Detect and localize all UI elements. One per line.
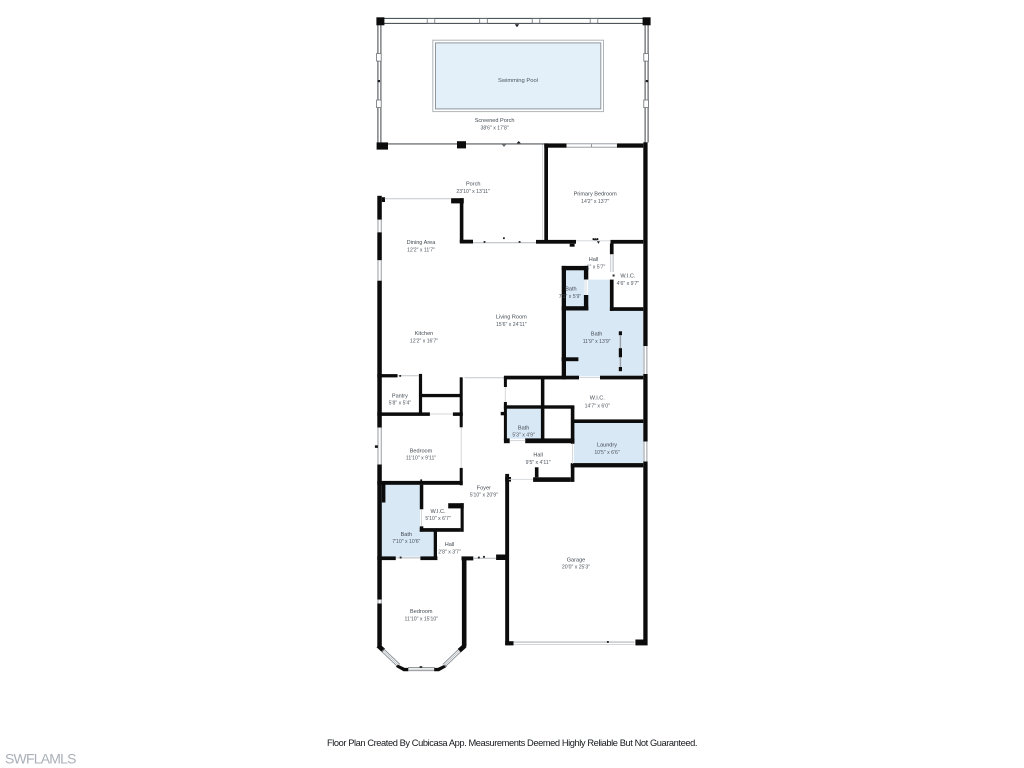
svg-text:Hall: Hall	[533, 453, 543, 459]
svg-text:Laundry: Laundry	[597, 442, 617, 448]
svg-text:12'2" x 11'7": 12'2" x 11'7"	[407, 248, 435, 254]
svg-text:Bath: Bath	[565, 287, 576, 293]
svg-text:9'5" x 4'11": 9'5" x 4'11"	[526, 460, 551, 466]
svg-text:Porch: Porch	[466, 182, 481, 188]
svg-text:2'8" x 3'7": 2'8" x 3'7"	[438, 550, 461, 556]
svg-text:Hall: Hall	[445, 542, 455, 548]
svg-text:Living Room: Living Room	[496, 314, 527, 320]
svg-text:Hall: Hall	[589, 257, 599, 263]
svg-text:Bedroom: Bedroom	[410, 448, 433, 454]
svg-text:Garage: Garage	[567, 557, 586, 563]
svg-text:W.I.C.: W.I.C.	[590, 396, 606, 402]
svg-text:10'5" x 6'6": 10'5" x 6'6"	[594, 450, 620, 456]
svg-text:Primary Bedroom: Primary Bedroom	[574, 192, 618, 198]
svg-text:20'0" x 25'3": 20'0" x 25'3"	[562, 565, 590, 571]
svg-text:Dining Area: Dining Area	[407, 240, 437, 246]
svg-text:1" x 5'7": 1" x 5'7"	[587, 264, 606, 270]
svg-text:Foyer: Foyer	[477, 486, 491, 492]
svg-text:Bath: Bath	[591, 332, 602, 338]
svg-text:Floor Plan Created By Cubicasa: Floor Plan Created By Cubicasa App. Meas…	[327, 738, 697, 748]
svg-text:11'10" x 15'10": 11'10" x 15'10"	[405, 617, 439, 623]
svg-text:15'6" x 24'11": 15'6" x 24'11"	[496, 322, 527, 328]
svg-text:W.I.C.: W.I.C.	[430, 509, 446, 515]
svg-text:Swimming Pool: Swimming Pool	[498, 78, 538, 84]
svg-text:14'2" x 13'7": 14'2" x 13'7"	[581, 199, 609, 205]
svg-text:Bath: Bath	[401, 532, 412, 538]
svg-text:Screened Porch: Screened Porch	[475, 118, 515, 124]
svg-text:7'10" x 10'6": 7'10" x 10'6"	[392, 539, 420, 545]
svg-text:14'7" x 6'0": 14'7" x 6'0"	[585, 403, 611, 409]
svg-text:38'6" x 17'8": 38'6" x 17'8"	[480, 126, 508, 132]
svg-text:W.I.C.: W.I.C.	[620, 274, 636, 280]
svg-text:Pantry: Pantry	[392, 394, 408, 400]
svg-text:5'10" x 6'7": 5'10" x 6'7"	[425, 516, 451, 522]
svg-text:4'6" x 9'7": 4'6" x 9'7"	[617, 281, 640, 287]
svg-text:Bath: Bath	[518, 426, 529, 432]
svg-text:5'10" x 20'9": 5'10" x 20'9"	[470, 493, 498, 499]
svg-text:7'1" x 5'9": 7'1" x 5'9"	[559, 294, 582, 300]
svg-text:Kitchen: Kitchen	[415, 331, 434, 337]
svg-text:Bedroom: Bedroom	[410, 609, 433, 615]
svg-text:11'9" x 13'9": 11'9" x 13'9"	[583, 339, 611, 345]
svg-text:11'10" x 9'11": 11'10" x 9'11"	[406, 456, 436, 462]
svg-text:5'3" x 4'9": 5'3" x 4'9"	[512, 433, 535, 439]
svg-text:12'2" x 16'7": 12'2" x 16'7"	[410, 339, 438, 345]
svg-text:23'10" x 13'11": 23'10" x 13'11"	[456, 189, 490, 195]
svg-text:SWFLAMLS: SWFLAMLS	[5, 751, 76, 767]
svg-text:5'8" x 5'4": 5'8" x 5'4"	[389, 401, 412, 407]
